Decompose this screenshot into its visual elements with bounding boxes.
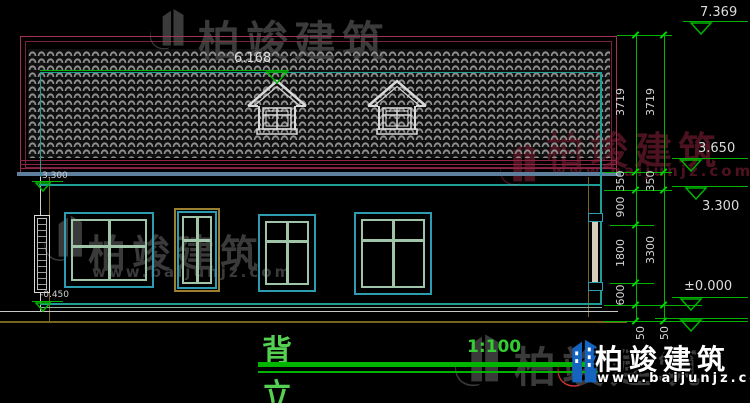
dim-chain-outer-line: [664, 35, 665, 322]
watermark-left: 柏竣建筑 www.baijunjz.com: [40, 205, 96, 275]
window-4: [354, 212, 432, 295]
elevation-marker-triangle: [679, 159, 703, 172]
watermark-brand-text: 柏竣建筑: [198, 8, 390, 69]
ground-line-olive: [0, 321, 627, 323]
elevation-marker-triangle: [35, 302, 51, 312]
title-underline-thin: [258, 371, 599, 373]
elevation-text: ±0.000: [684, 280, 732, 294]
downspout-bracket-bottom: [588, 282, 603, 291]
downspout-pipe: [592, 218, 598, 286]
wall-right-teal-line: [600, 72, 602, 305]
title-underline-thick: [258, 362, 599, 367]
elevation-marker-triangle: [265, 71, 289, 84]
wall-right-olive-edge: [588, 177, 589, 317]
brand-logo-icon: [146, 4, 196, 54]
brand-logo-icon: [496, 134, 548, 194]
window-mullion: [392, 219, 395, 288]
elevation-marker-triangle: [35, 182, 51, 192]
dim-extension-line: [604, 321, 748, 322]
roof-gutter-line-top: [40, 72, 601, 73]
dim-label: 600: [615, 273, 629, 317]
ground-line-white: [0, 311, 618, 312]
elevation-text: 7.369: [700, 6, 737, 20]
plinth-light-line: [40, 307, 602, 308]
watermark-top: 柏竣建筑: [146, 4, 196, 58]
elevation-text: -0.450: [40, 290, 69, 300]
dim-label: 350: [645, 159, 659, 203]
dormer-window-left: [246, 78, 308, 140]
brand-logo-icon: [450, 324, 514, 396]
elevation-text: 3.300: [42, 171, 68, 181]
elevation-text: 3.650: [698, 142, 735, 156]
dim-label: 3300: [645, 228, 659, 272]
drawing-scale: 1:100: [467, 337, 521, 357]
elevation-marker-triangle: [689, 22, 713, 35]
window-transom: [265, 240, 309, 243]
dim-label: 3719: [645, 80, 659, 124]
dim-label: 900: [615, 185, 629, 229]
watermark-bottom-right: 柏竣建筑 www.baijunjz.com: [553, 334, 611, 396]
downspout-bracket-top: [588, 213, 603, 222]
watermark-url-text: www.baijunjz.com: [597, 371, 750, 386]
dim-label: 1800: [615, 231, 629, 275]
watermark-url-text: www.baijunjz.com: [92, 263, 293, 281]
plinth-teal-line: [40, 303, 602, 305]
ridge-dim-text: 6.168: [234, 52, 271, 66]
elevation-drawing-canvas: 柏竣建筑 柏竣建筑 www.baijunjz.com 柏竣建筑 www.baij…: [0, 0, 750, 403]
elevation-text: 3.300: [702, 200, 739, 214]
elevation-marker-triangle: [679, 298, 703, 311]
dim-label: 3719: [615, 80, 629, 124]
window-transom: [361, 239, 425, 242]
dormer-window-right: [366, 78, 428, 140]
elevation-marker-triangle: [679, 319, 703, 332]
ridge-dim-line: [40, 70, 289, 71]
